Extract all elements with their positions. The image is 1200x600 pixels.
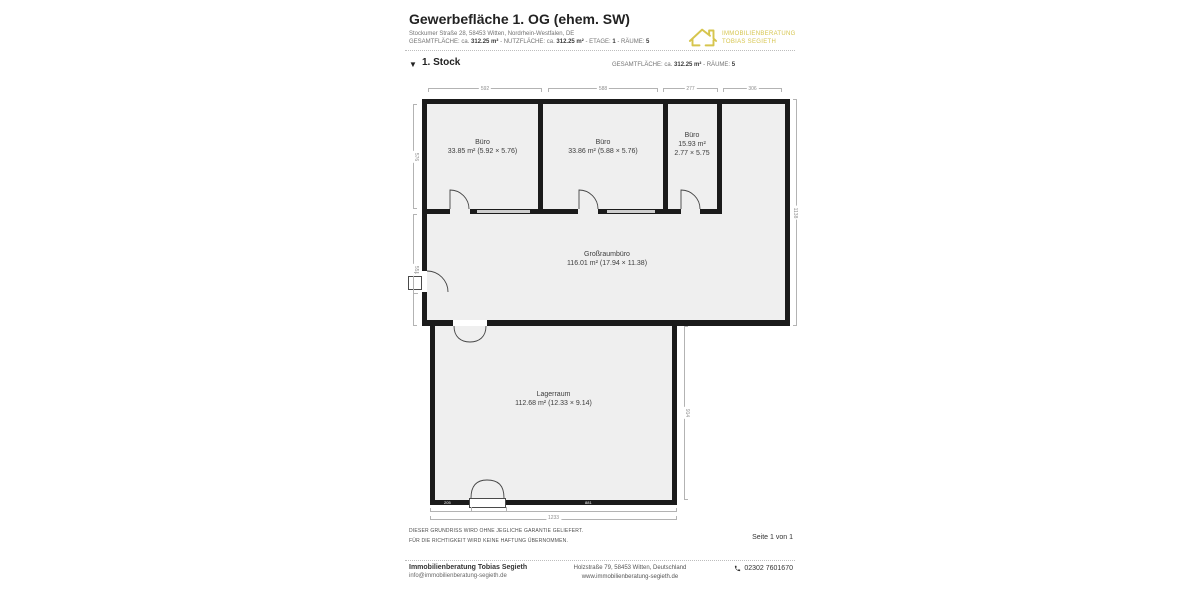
summary-text: GESAMTFLÄCHE: ca. <box>612 62 672 68</box>
room-size: 116.01 m² (17.94 × 11.38) <box>427 259 787 268</box>
area-summary: GESAMTFLÄCHE: ca. 312.25 m² - NUTZFLÄCHE… <box>409 39 649 45</box>
double-door-arc <box>471 480 504 498</box>
room-name: Büro <box>427 138 538 147</box>
phone-block[interactable]: 02302 7601670 <box>690 565 793 572</box>
room-label-lagerraum: Lagerraum 112.68 m² (12.33 × 9.14) <box>435 390 672 408</box>
house-icon <box>688 27 718 48</box>
dimension-label: 1138 <box>792 205 797 220</box>
dimension-tick <box>414 293 418 294</box>
floor-plan: Büro 33.85 m² (5.92 × 5.76) Büro 33.86 m… <box>405 85 800 530</box>
summary-value: 312.25 m² <box>674 62 701 68</box>
dimension-tick <box>471 507 472 511</box>
page-title: Gewerbefläche 1. OG (ehem. SW) <box>409 11 630 27</box>
room-name: Lagerraum <box>435 390 672 399</box>
page-number: Seite 1 von 1 <box>700 534 793 541</box>
dimension-line: 1233 <box>430 516 677 520</box>
summary-text: - ETAGE: <box>585 39 610 45</box>
summary-value: 5 <box>646 39 649 45</box>
summary-value: 1 <box>612 39 615 45</box>
dimension-line: 551 <box>413 214 417 326</box>
summary-value: 312.25 m² <box>471 39 498 45</box>
phone-number[interactable]: 02302 7601670 <box>744 565 793 572</box>
summary-text: GESAMTFLÄCHE: ca. <box>409 39 469 45</box>
dimension-tick <box>414 272 418 273</box>
dimension-label: 576 <box>413 150 418 162</box>
floorplan-page: Gewerbefläche 1. OG (ehem. SW) Stockumer… <box>0 0 1200 600</box>
summary-value: 312.25 m² <box>556 39 583 45</box>
door-arc <box>579 190 598 209</box>
door-arc <box>427 271 448 292</box>
room-size: 112.68 m² (12.33 × 9.14) <box>435 399 672 408</box>
dimension-label: 914 <box>684 407 689 419</box>
dimension-label: 306 <box>746 87 758 92</box>
room-size: 2.77 × 5.75 <box>661 149 723 158</box>
dimension-label: 588 <box>597 87 609 92</box>
summary-text: - NUTZFLÄCHE: ca. <box>500 39 555 45</box>
summary-text: - RÄUME: <box>617 39 644 45</box>
property-address: Stockumer Straße 28, 58453 Witten, Nordr… <box>409 31 574 37</box>
broker-logo: IMMOBILIENBERATUNG TOBIAS SEGIETH <box>688 27 796 48</box>
company-website[interactable]: www.immobilienberatung-segieth.de <box>520 573 740 582</box>
floor-label[interactable]: 1. Stock <box>422 57 460 68</box>
floor-area-summary: GESAMTFLÄCHE: ca. 312.25 m² - RÄUME: 5 <box>612 62 735 68</box>
wall-dimension-label: 881 <box>585 500 592 505</box>
company-name: Immobilienberatung Tobias Segieth <box>409 564 527 571</box>
dimension-line: 576 <box>413 104 417 209</box>
room-name: Büro <box>661 131 723 140</box>
dimension-line <box>430 508 677 512</box>
broker-logo-line1: IMMOBILIENBERATUNG <box>722 30 796 38</box>
dimension-line: 306 <box>723 88 782 92</box>
dimension-line: 592 <box>428 88 542 92</box>
door-arc <box>450 190 469 209</box>
dimension-label: 1233 <box>546 516 561 521</box>
dimension-line: 914 <box>684 326 688 500</box>
dimension-label: 551 <box>413 264 418 276</box>
room-label-buero-2: Büro 33.86 m² (5.88 × 5.76) <box>543 138 663 156</box>
room-label-buero-1: Büro 33.85 m² (5.92 × 5.76) <box>427 138 538 156</box>
room-label-buero-3: Büro 15.93 m² 2.77 × 5.75 <box>661 131 723 158</box>
room-size: 15.93 m² <box>661 140 723 149</box>
room-name: Großraumbüro <box>427 250 787 259</box>
header-divider <box>405 50 795 51</box>
double-door-arc <box>454 326 486 342</box>
dimension-tick <box>506 507 507 511</box>
wall-dimension-label: 205 <box>444 500 451 505</box>
footer-divider <box>405 560 795 561</box>
broker-logo-line2: TOBIAS SEGIETH <box>722 38 796 46</box>
room-name: Büro <box>543 138 663 147</box>
dimension-line: 277 <box>663 88 718 92</box>
company-email[interactable]: info@immobilienberatung-segieth.de <box>409 573 507 579</box>
summary-value: 5 <box>732 62 735 68</box>
phone-icon <box>734 565 741 572</box>
dimension-label: 592 <box>479 87 491 92</box>
room-label-grossraumbuero: Großraumbüro 116.01 m² (17.94 × 11.38) <box>427 250 787 268</box>
disclaimer-line-1: DIESER GRUNDRISS WIRD OHNE JEGLICHE GARA… <box>409 528 583 534</box>
triangle-down-icon[interactable]: ▼ <box>409 60 417 69</box>
dimension-line: 1138 <box>793 99 797 326</box>
summary-text: - RÄUME: <box>703 62 730 68</box>
room-size: 33.86 m² (5.88 × 5.76) <box>543 147 663 156</box>
disclaimer-line-2: FÜR DIE RICHTIGKEIT WIRD KEINE HAFTUNG Ü… <box>409 538 568 544</box>
dimension-label: 277 <box>684 87 696 92</box>
broker-logo-text: IMMOBILIENBERATUNG TOBIAS SEGIETH <box>722 30 796 46</box>
room-size: 33.85 m² (5.92 × 5.76) <box>427 147 538 156</box>
dimension-line: 588 <box>548 88 658 92</box>
door-arc <box>681 190 700 209</box>
